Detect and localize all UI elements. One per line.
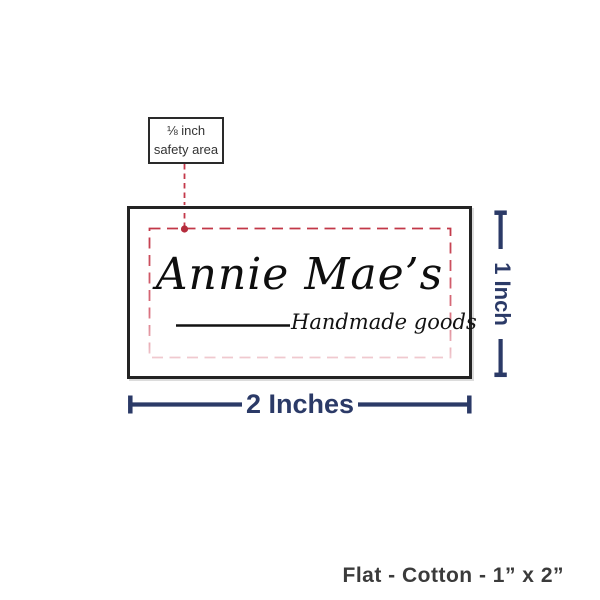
height-dimension-label: 1 Inch — [483, 249, 520, 339]
callout-box: ⅛ inch safety area — [148, 117, 224, 164]
tagline-text: Handmade goods — [291, 310, 477, 334]
callout-line2: safety area — [154, 142, 218, 157]
width-dimension-label: 2 Inches — [242, 386, 358, 422]
callout-line1: ⅛ inch — [167, 123, 205, 138]
width-dimension-value: 2 Inches — [246, 389, 354, 420]
callout-text: ⅛ inch safety area — [154, 122, 218, 158]
caption-text: Flat - Cotton - 1” x 2” — [343, 564, 565, 588]
height-dimension-value: 1 Inch — [489, 262, 515, 326]
brand-text: Annie Mae’s — [130, 249, 469, 300]
diagram-canvas: ⅛ inch safety area Annie Mae’s Handmade … — [0, 0, 600, 600]
